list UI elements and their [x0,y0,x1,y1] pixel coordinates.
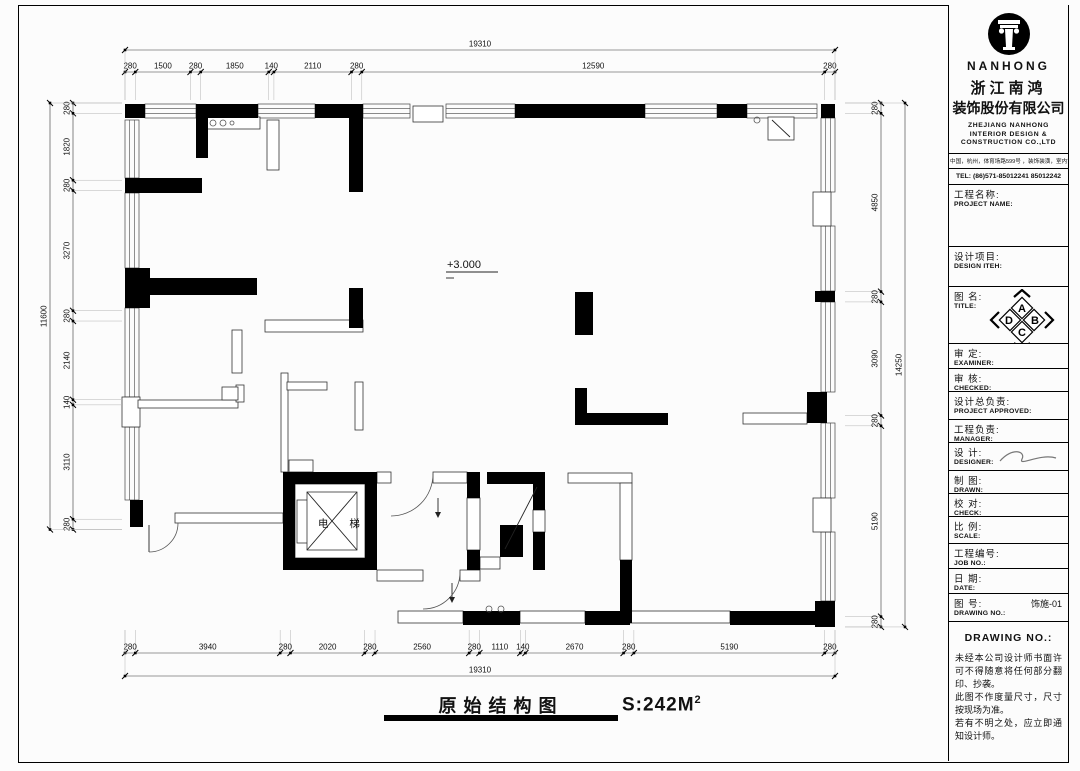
partition-wall [138,400,238,408]
notes-heading: DRAWING NO.: [955,632,1062,644]
drawing-sheet: +3.000电 梯2801500280185014021102801259028… [0,0,1080,771]
wall-segment [807,392,827,423]
dimension-dot [199,71,202,74]
dimension-label: 280 [622,643,636,652]
dimension-dot [273,71,276,74]
note-line: 若有不明之处，应立即通知设计师。 [955,717,1062,743]
title-block-row-title: 图 名:TITLE:ABCD [949,286,1068,343]
company-telephone: TEL: (86)571-85012241 85012242 [949,168,1068,184]
dimension-label: 14250 [895,353,904,376]
company-name-cn-2: 装饰股份有限公司 [949,98,1068,118]
dimension-dot [468,652,471,655]
partition-wall [433,472,467,483]
partition-wall [205,117,260,129]
dimension-dot [374,652,377,655]
floor-plan-canvas: +3.000电 梯2801500280185014021102801259028… [0,0,1080,771]
title-block-row-drawing-no: 图 号:DRAWING NO.:饰施-01 [949,593,1068,621]
dimension-dot [823,652,826,655]
door-swing-arc [423,572,460,609]
partition-wall [630,611,730,623]
wall-segment [815,601,835,627]
wall-segment [575,292,593,335]
wall-segment [533,532,545,570]
wall-segment [315,104,363,118]
title-block-row-project-approved: 设计总负责:PROJECT APPROVED: [949,391,1068,419]
door-swing-arc [149,523,178,552]
dimension-label: 19310 [469,40,492,49]
svg-text:B: B [1031,315,1039,327]
title-block: NANHONG 浙江南鸿 装饰股份有限公司 ZHEJIANG NANHONG I… [948,5,1068,761]
dimension-label: 280 [871,413,880,427]
svg-text:D: D [1005,315,1013,327]
dimension-dot [267,71,270,74]
company-name-cn-1: 浙江南鸿 [949,77,1068,98]
wall-segment [125,178,202,193]
dimension-label: 280 [279,643,293,652]
dimension-dot [904,102,907,105]
dimension-dot [880,112,883,115]
wall-segment [196,116,208,158]
company-logo-text: NANHONG [949,59,1068,73]
orientation-compass-icon: ABCD [978,289,1066,343]
level-label: +3.000 [447,259,481,271]
title-block-row-drawn: 制 图:DRAWN: [949,470,1068,493]
partition-wall [520,611,585,623]
partition-wall [533,510,545,532]
partition-wall [289,460,313,472]
dimension-label: 3090 [871,349,880,367]
svg-text:A: A [1018,303,1026,315]
dimension-label: 1850 [226,62,244,71]
dimension-label: 3270 [63,241,72,259]
dimension-label: 140 [265,62,279,71]
window-segment [363,104,410,118]
window-segment [645,104,717,118]
dimension-label: 5190 [871,512,880,530]
wall-segment [283,558,377,570]
title-block-row-scale: 比 例:SCALE: [949,516,1068,543]
dimension-dot [834,49,837,52]
dimension-label: 280 [63,517,72,531]
partition-wall [568,473,632,483]
partition-wall [620,483,632,560]
partition-wall [175,513,283,523]
dimension-label: 5190 [720,643,738,652]
window-segment [821,226,835,291]
dimension-dot [72,518,75,521]
wall-segment [500,525,523,557]
dimension-label: 2020 [319,643,337,652]
window-segment [125,193,139,268]
wall-segment [283,472,377,484]
window-segment [821,302,835,392]
partition-wall [232,330,242,373]
dimension-label: 2140 [63,351,72,369]
notes-block: DRAWING NO.: 未经本公司设计师书面许可不得随意将任何部分翻印、抄袭。… [949,621,1068,762]
dimension-label: 140 [516,643,530,652]
door-arrowhead [449,597,455,603]
dimension-dot [72,320,75,323]
wall-segment [349,116,363,192]
dimension-label: 280 [189,62,203,71]
wall-segment [821,104,835,118]
title-block-row-checked: 审 核:CHECKED: [949,368,1068,391]
company-header: NANHONG 浙江南鸿 装饰股份有限公司 ZHEJIANG NANHONG I… [949,5,1068,184]
dimension-dot [72,404,75,407]
svg-text:C: C [1018,327,1026,339]
wall-segment [585,611,630,625]
dimension-label: 280 [871,290,880,304]
wall-segment [487,472,533,484]
wall-segment [196,104,258,118]
drawing-number-value: 饰施-01 [1031,597,1062,610]
dimension-label: 1500 [154,62,172,71]
dimension-label: 280 [63,178,72,192]
dimension-label: 1110 [492,643,509,652]
dimension-dot [880,425,883,428]
dimension-dot [363,652,366,655]
door-arrowhead [435,512,441,518]
partition-wall [222,387,238,400]
wall-segment [463,611,520,625]
dimension-dot [633,652,636,655]
partition-wall [460,570,480,581]
dimension-label: 4850 [871,193,880,211]
dimension-dot [622,652,625,655]
partition-wall [813,192,831,226]
partition-wall [267,120,279,170]
dimension-label: 280 [63,309,72,323]
dimension-dot [124,49,127,52]
title-block-row-check: 校 对:CHECK: [949,493,1068,516]
wall-segment [815,291,835,302]
wall-segment [349,288,363,328]
dimension-label: 3110 [63,453,72,471]
dimension-dot [49,102,52,105]
title-block-row-job-no: 工程编号:JOB NO.: [949,543,1068,568]
dimension-dot [124,675,127,678]
title-block-row-date: 日 期:DATE: [949,568,1068,593]
note-line: 未经本公司设计师书面许可不得随意将任何部分翻印、抄袭。 [955,652,1062,691]
window-segment [145,104,196,118]
dimension-label: 1820 [63,137,72,155]
window-segment [125,120,139,178]
window-segment [821,532,835,601]
window-segment [258,104,315,118]
dimension-dot [524,652,527,655]
wall-segment [467,472,480,498]
dimension-dot [72,112,75,115]
dimension-dot [134,71,137,74]
dimension-dot [360,71,363,74]
dimension-label: 280 [350,62,364,71]
partition-wall [413,106,443,122]
dimension-dot [880,414,883,417]
title-block-row-designer: 设 计:DESIGNER: [949,442,1068,470]
dimension-label: 280 [123,62,137,71]
wall-segment [717,104,747,118]
dimension-dot [279,652,282,655]
partition-wall [122,397,140,427]
dimension-label: 280 [123,643,137,652]
nanhong-logo-icon [986,11,1032,57]
title-block-row-project-name: 工程名称:PROJECT NAME: [949,184,1068,246]
dimension-dot [880,301,883,304]
dimension-dot [834,675,837,678]
dimension-dot [823,71,826,74]
designer-signature [994,445,1064,469]
wall-segment [730,611,817,625]
dimension-dot [478,652,481,655]
partition-wall [265,320,363,332]
window-segment [821,423,835,498]
dimension-label: 140 [63,395,72,409]
title-block-row-examiner: 审 定:EXAMINER: [949,343,1068,368]
dimension-label: 280 [871,615,880,629]
dimension-label: 12590 [582,62,605,71]
wall-segment [515,104,645,118]
title-block-row-design-iteh: 设计项目:DESIGN ITEH: [949,246,1068,286]
company-name-en: ZHEJIANG NANHONG INTERIOR DESIGN & CONST… [949,122,1068,148]
dimension-label: 2670 [566,643,584,652]
window-segment [446,104,515,118]
elevator-label: 电 梯 [318,517,369,530]
dimension-label: 3940 [199,643,217,652]
window-segment [125,308,139,397]
dimension-dot [880,290,883,293]
partition-wall [480,557,500,569]
dimension-dot [134,652,137,655]
dimension-dot [72,309,75,312]
partition-wall [287,382,327,390]
dimension-dot [72,398,75,401]
window-segment [747,104,817,118]
dimension-dot [49,528,52,531]
partition-wall [377,570,423,581]
company-address: 中国，杭州，体育场路599号 ，装饰装潢，室内设计 [949,153,1068,168]
dimension-label: 280 [363,643,377,652]
dimension-label: 2110 [304,62,322,71]
dimension-dot [880,615,883,618]
dimension-dot [189,71,192,74]
partition-wall [398,611,463,623]
dimension-dot [519,652,522,655]
dimension-label: 11600 [40,305,49,327]
title-block-row-manager: 工程负责:MANAGER: [949,419,1068,442]
wall-segment [125,104,145,118]
partition-wall [813,498,831,532]
partition-wall [467,498,480,550]
wall-segment [130,500,143,527]
wall-segment [467,550,480,570]
partition-wall [743,413,807,424]
dimension-label: 19310 [469,666,492,675]
window-segment [125,427,139,500]
wall-segment [283,484,295,558]
dimension-dot [289,652,292,655]
partition-wall [355,382,363,430]
dimension-dot [904,626,907,629]
partition-wall [377,472,391,483]
dimension-dot [72,189,75,192]
dimension-dot [350,71,353,74]
note-line: 此图不作度量尺寸，尺寸按现场为准。 [955,691,1062,717]
dimension-dot [72,179,75,182]
wall-segment [139,278,257,295]
dimension-label: 2560 [413,643,431,652]
window-segment [821,118,835,192]
dimension-label: 280 [468,643,482,652]
door-swing-arc [391,474,433,516]
title-block-rows: 工程名称:PROJECT NAME:设计项目:DESIGN ITEH:图 名:T… [949,184,1068,621]
wall-segment [575,413,668,425]
